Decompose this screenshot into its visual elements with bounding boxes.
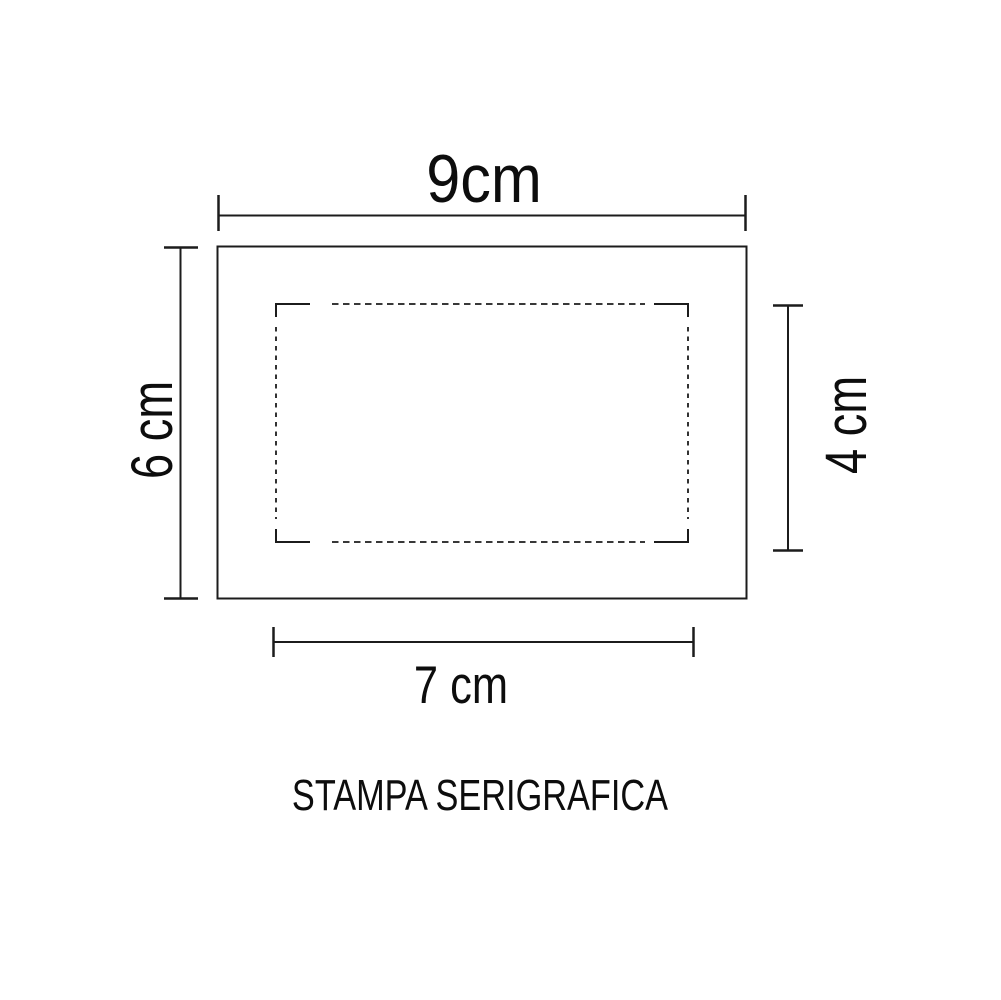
print-height-dimension-label: 4 cm (815, 376, 880, 474)
outer-height-dimension-label: 6 cm (121, 381, 186, 479)
outer-width-dimension-label: 9cm (426, 140, 542, 217)
drawing-caption: STAMPA SERIGRAFICA (292, 771, 669, 820)
print-width-dimension: 7 cm (273, 627, 694, 715)
print-height-dimension: 4 cm (773, 305, 879, 551)
outer-height-dimension: 6 cm (121, 247, 198, 599)
outer-width-dimension: 9cm (218, 140, 746, 231)
canvas: 9cm 6 cm 4 cm 7 cm STAMPA SERIGRAFICA (0, 0, 1001, 1000)
print-area-dashed-rectangle (276, 304, 688, 542)
outer-rectangle (218, 247, 747, 599)
print-area-corner-bracket-top-left (276, 304, 310, 317)
technical-drawing: 9cm 6 cm 4 cm 7 cm STAMPA SERIGRAFICA (0, 0, 1001, 1000)
print-area-corner-bracket-bottom-right (654, 529, 688, 542)
print-width-dimension-label: 7 cm (414, 656, 508, 715)
print-area-corner-bracket-top-right (654, 304, 688, 317)
print-area-corner-bracket-bottom-left (276, 529, 310, 542)
